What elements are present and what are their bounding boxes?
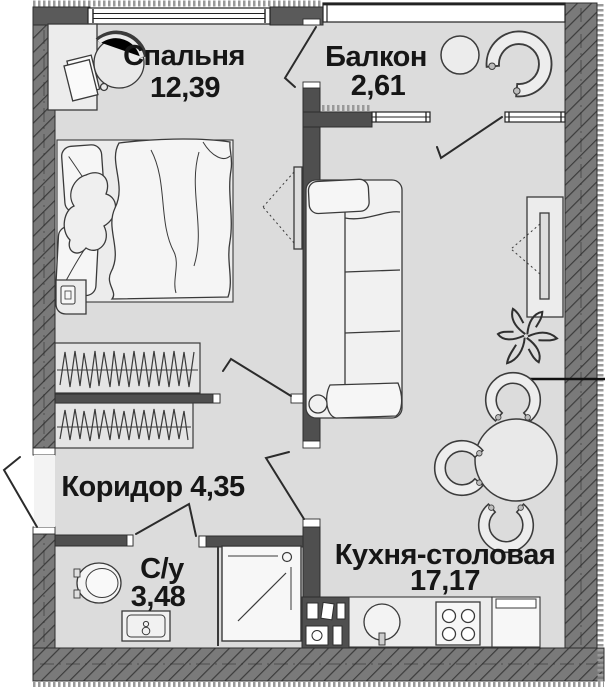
balcony-glazing xyxy=(323,3,565,22)
fridge-icon xyxy=(492,597,540,647)
balcony-area: 2,61 xyxy=(351,70,406,102)
balcony-side-table xyxy=(441,36,479,74)
balcony-window-right xyxy=(505,112,565,122)
shower-icon xyxy=(222,546,301,641)
bed xyxy=(55,139,233,302)
duvet xyxy=(109,139,231,299)
wardrobe-bedroom xyxy=(55,343,200,393)
kitchen-area: 17,17 xyxy=(410,565,480,597)
kitchen-counter xyxy=(349,597,540,647)
top-pier-left xyxy=(33,7,90,25)
bedroom-window xyxy=(88,8,270,24)
nightstand xyxy=(56,280,86,314)
balcony-name: Балкон xyxy=(325,41,427,73)
wardrobe-corridor xyxy=(55,403,193,448)
balcony-window-left xyxy=(372,112,430,122)
kitchen-corridor-wall xyxy=(303,527,320,600)
dining-table xyxy=(475,419,557,501)
bathroom-area: 3,48 xyxy=(131,581,186,613)
corridor-label: Коридор 4,35 xyxy=(61,471,245,503)
stove-icon xyxy=(436,602,480,645)
bedroom-name: Спальня xyxy=(123,40,245,72)
sofa xyxy=(306,179,402,418)
desk xyxy=(48,24,101,110)
bathroom-top-wall-left xyxy=(55,535,133,546)
washbasin-icon xyxy=(122,611,170,641)
balcony-divider-wall xyxy=(303,112,372,127)
floor-plan-page: Спальня 12,39 Балкон 2,61 Коридор 4,35 С… xyxy=(0,0,606,687)
bedroom-bottom-wall xyxy=(55,394,220,403)
bedroom-area: 12,39 xyxy=(150,72,220,104)
floor-plan: Спальня 12,39 Балкон 2,61 Коридор 4,35 С… xyxy=(0,0,606,687)
